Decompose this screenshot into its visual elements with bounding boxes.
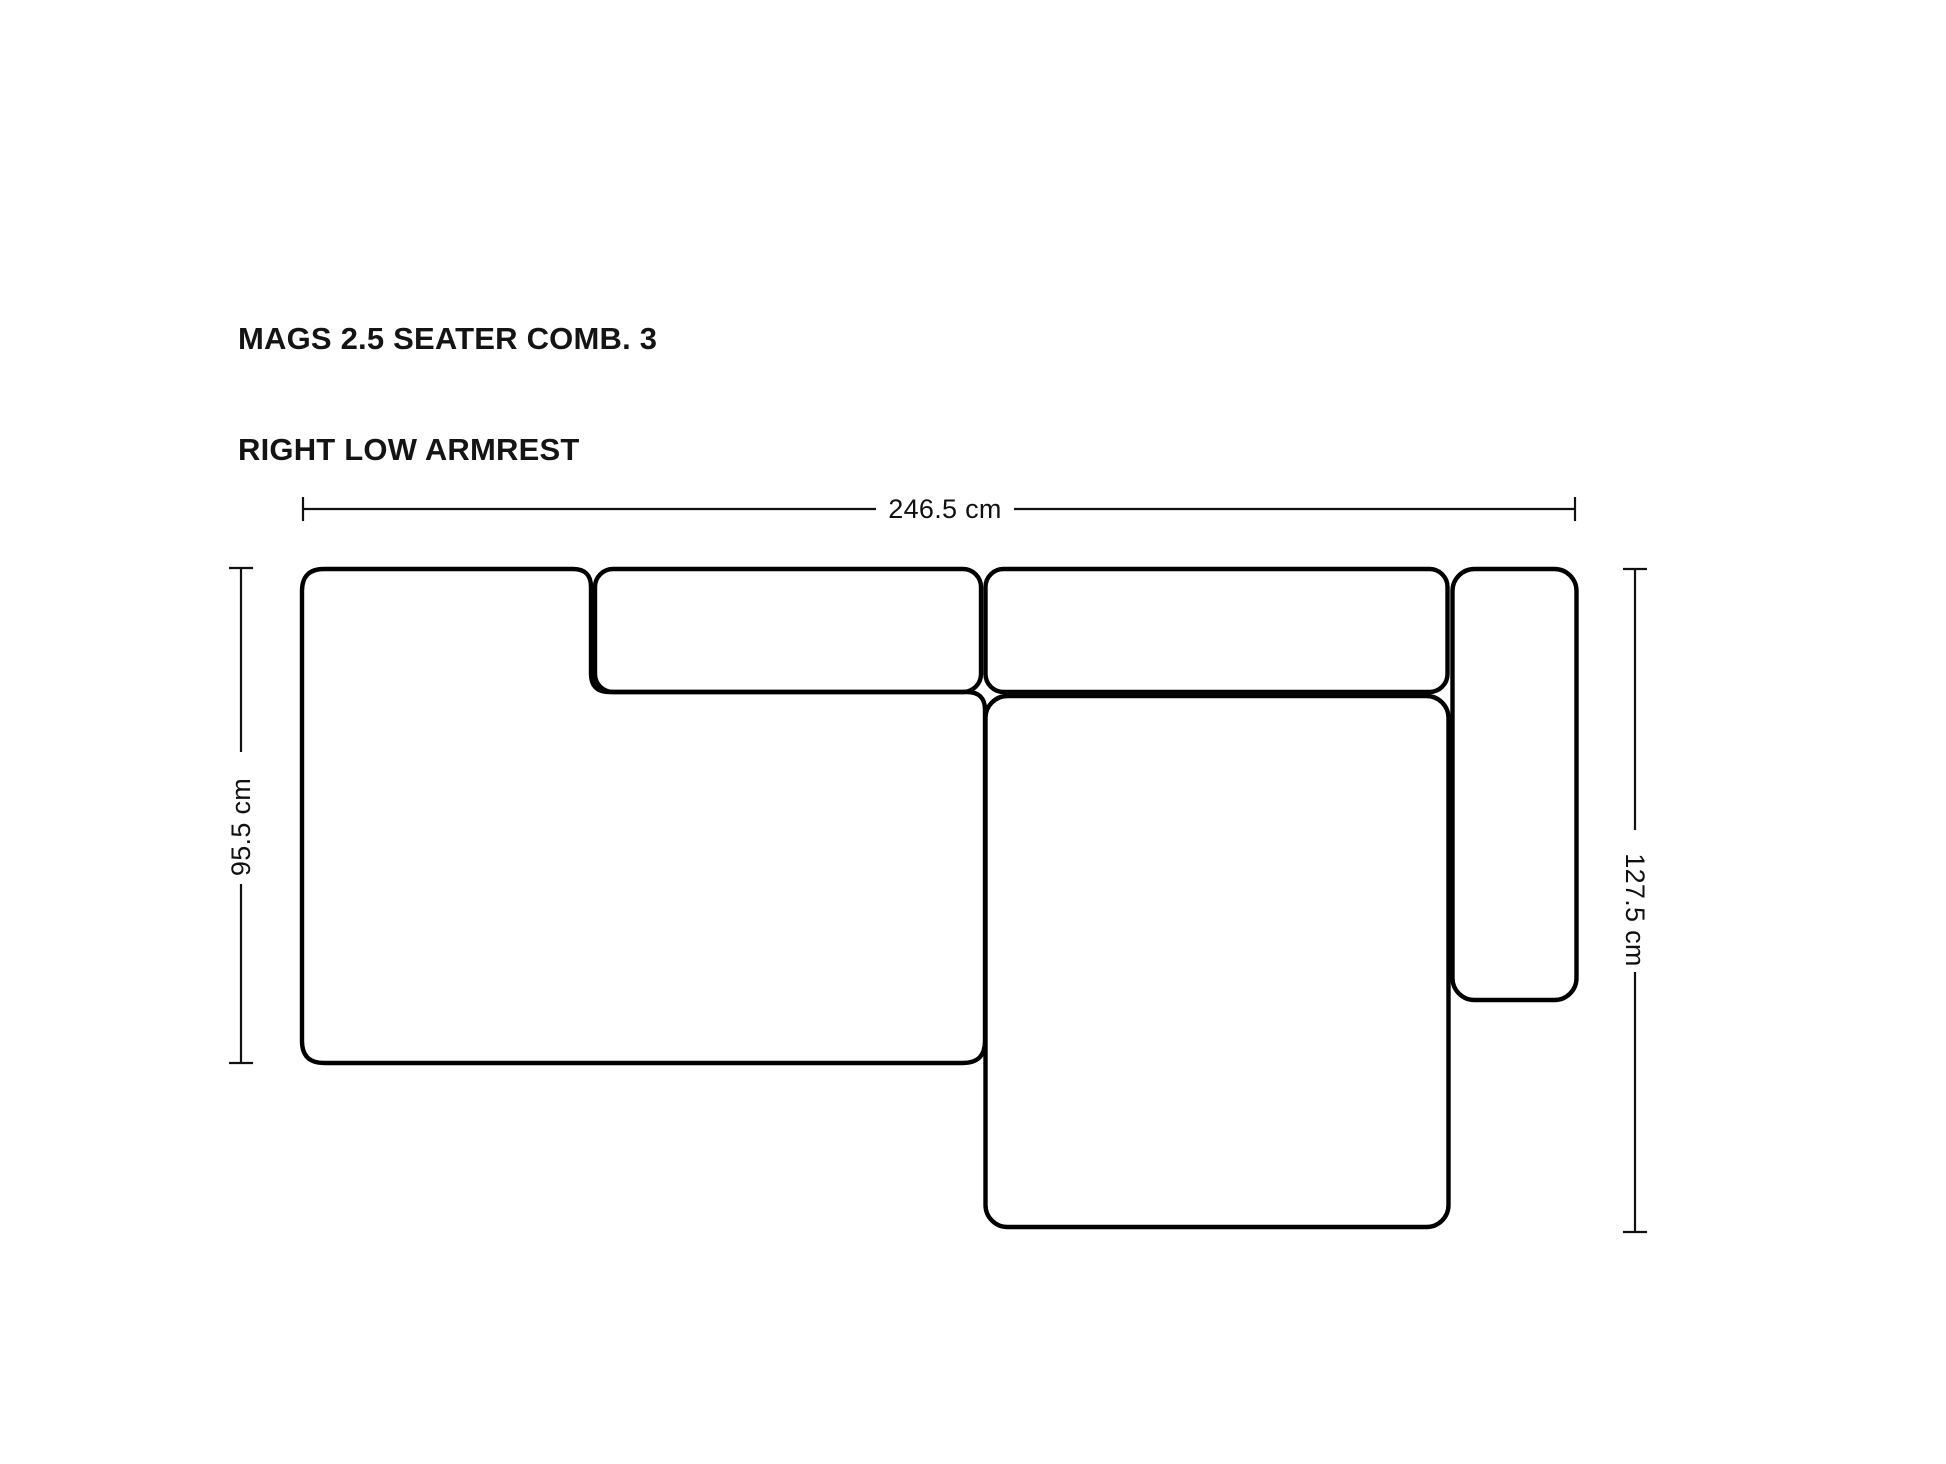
page-root: MAGS 2.5 SEATER COMB. 3 RIGHT LOW ARMRES… — [0, 0, 1946, 1464]
right-depth-dimension-label: 127.5 cm — [1620, 853, 1650, 966]
sofa-diagram-svg: 246.5 cm 95.5 cm 127.5 cm — [0, 0, 1946, 1464]
right-armrest-outline — [1453, 569, 1577, 1000]
width-dimension-label: 246.5 cm — [888, 494, 1001, 524]
chaise-module-outline — [986, 696, 1449, 1227]
sofa-outline-group — [302, 569, 1577, 1227]
right-depth-dimension-line: 127.5 cm — [1620, 569, 1650, 1232]
left-depth-dimension-label: 95.5 cm — [226, 778, 256, 876]
width-dimension-line: 246.5 cm — [303, 494, 1575, 524]
back-cushion-right-outline — [986, 569, 1448, 692]
left-depth-dimension-line: 95.5 cm — [226, 568, 256, 1063]
back-cushion-left-outline — [595, 569, 981, 692]
